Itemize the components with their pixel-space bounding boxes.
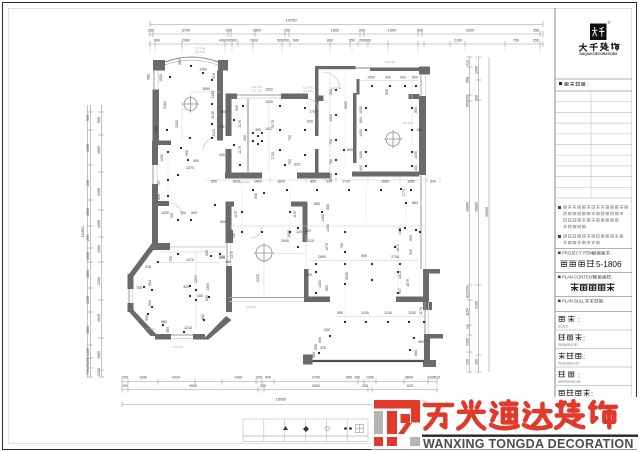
svg-text:1000: 1000 [367, 76, 375, 80]
svg-text::: : [587, 83, 588, 89]
svg-text:2690: 2690 [318, 255, 326, 259]
svg-text:737: 737 [157, 180, 161, 186]
svg-text:980: 980 [147, 74, 151, 80]
svg-text:855: 855 [211, 180, 217, 184]
svg-text:3600: 3600 [344, 101, 348, 109]
svg-text:1000: 1000 [97, 245, 101, 253]
svg-text:SCALE: SCALE [558, 325, 568, 329]
svg-text:1300: 1300 [465, 338, 469, 346]
svg-text:730: 730 [340, 243, 344, 249]
svg-text:1089: 1089 [287, 230, 291, 238]
svg-text:1430: 1430 [139, 376, 147, 380]
svg-text:1000: 1000 [86, 270, 90, 278]
svg-text:1800: 1800 [277, 180, 285, 184]
svg-text:400: 400 [359, 165, 363, 171]
svg-text:1680: 1680 [381, 180, 389, 184]
svg-text:200: 200 [122, 376, 128, 380]
svg-text:DESIGNED BY: DESIGNED BY [558, 362, 581, 366]
svg-text:2100: 2100 [454, 39, 462, 43]
svg-text:4600: 4600 [86, 326, 90, 334]
svg-text:905: 905 [361, 254, 367, 258]
svg-text:1175: 1175 [238, 120, 242, 128]
svg-text:4900: 4900 [189, 384, 197, 388]
svg-text:405: 405 [193, 159, 199, 163]
svg-text:1080: 1080 [155, 126, 159, 134]
svg-text:1500: 1500 [86, 252, 90, 260]
svg-text:600: 600 [318, 337, 322, 343]
svg-text:2240: 2240 [345, 272, 349, 280]
svg-text:C2 17a: C2 17a [173, 345, 183, 349]
svg-text:1482: 1482 [321, 214, 325, 222]
svg-text:1270: 1270 [186, 166, 194, 170]
svg-text:C2 17a: C2 17a [252, 89, 262, 93]
svg-text:560: 560 [178, 59, 182, 65]
svg-text:860: 860 [414, 350, 418, 356]
svg-text:600: 600 [293, 39, 299, 43]
svg-text:600: 600 [359, 117, 363, 123]
svg-text:C2 17a: C2 17a [145, 327, 155, 331]
svg-text:430: 430 [219, 153, 225, 157]
svg-text:1720: 1720 [342, 180, 350, 184]
svg-text:1170: 1170 [419, 307, 423, 315]
svg-text:1000: 1000 [474, 66, 478, 74]
svg-text:790: 790 [288, 135, 292, 141]
svg-text::: : [611, 251, 612, 256]
svg-text:1000: 1000 [359, 106, 363, 114]
svg-text:DAQIAN DECORATIONS: DAQIAN DECORATIONS [579, 52, 618, 56]
svg-text:200: 200 [260, 384, 266, 388]
svg-text:1100: 1100 [384, 311, 392, 315]
svg-text:3700: 3700 [182, 29, 190, 33]
svg-text:518: 518 [212, 73, 216, 79]
svg-text:1450: 1450 [199, 68, 207, 72]
svg-text:1600: 1600 [250, 39, 258, 43]
svg-text:650: 650 [346, 376, 352, 380]
svg-text:200: 200 [86, 235, 90, 241]
svg-text:PLAN BULL: PLAN BULL [562, 299, 585, 304]
svg-text:800: 800 [157, 194, 161, 200]
svg-text:13: 13 [465, 325, 469, 329]
svg-text:862: 862 [412, 201, 418, 205]
svg-text:PROJECT ITEM: PROJECT ITEM [562, 251, 593, 256]
svg-text:1270: 1270 [396, 244, 400, 252]
svg-text:600: 600 [191, 211, 197, 215]
svg-text:905: 905 [235, 105, 239, 111]
svg-text:964: 964 [148, 280, 152, 286]
svg-text:5-1806: 5-1806 [596, 260, 622, 269]
svg-text:®: ® [608, 20, 611, 25]
svg-text:1175: 1175 [238, 146, 242, 154]
svg-text:146: 146 [225, 260, 231, 264]
svg-text:1300: 1300 [206, 283, 210, 291]
svg-text:210: 210 [308, 239, 314, 243]
svg-text:625: 625 [294, 163, 300, 167]
svg-text:2300: 2300 [97, 277, 101, 285]
svg-text:1400: 1400 [326, 224, 330, 232]
svg-text:390: 390 [166, 327, 170, 333]
svg-text:750: 750 [136, 286, 142, 290]
svg-text:880: 880 [314, 202, 320, 206]
svg-text::: : [604, 299, 605, 304]
svg-text:1000: 1000 [359, 129, 363, 137]
svg-text:1679: 1679 [406, 279, 410, 287]
svg-text:200: 200 [86, 180, 90, 186]
svg-text:200: 200 [474, 359, 478, 365]
svg-text:2300: 2300 [175, 120, 179, 128]
svg-text:1400: 1400 [318, 280, 322, 288]
svg-text:2000: 2000 [97, 188, 101, 196]
svg-text:1182: 1182 [211, 91, 215, 99]
svg-text:600: 600 [265, 376, 271, 380]
svg-text:2029: 2029 [97, 314, 101, 322]
svg-text:4000: 4000 [86, 144, 90, 152]
svg-text:700: 700 [180, 211, 186, 215]
svg-text:800: 800 [414, 107, 418, 113]
svg-text:2400: 2400 [163, 101, 167, 109]
svg-text:1370: 1370 [186, 258, 194, 262]
svg-text:1770: 1770 [402, 189, 406, 197]
svg-text:750: 750 [513, 39, 519, 43]
svg-text:900: 900 [409, 249, 413, 255]
svg-text:700: 700 [169, 256, 173, 262]
svg-text:250: 250 [533, 29, 539, 33]
svg-text:650: 650 [254, 193, 258, 199]
svg-text:500: 500 [97, 117, 101, 123]
svg-text:500200: 500200 [277, 39, 289, 43]
svg-text:3250: 3250 [466, 29, 474, 33]
svg-text::: : [578, 371, 580, 380]
svg-text:15950: 15950 [276, 398, 287, 402]
svg-text:960: 960 [145, 315, 149, 321]
svg-text:120: 120 [306, 273, 312, 277]
svg-text:250: 250 [533, 39, 539, 43]
svg-text:855: 855 [310, 180, 316, 184]
svg-text:C2 17a: C2 17a [385, 60, 395, 64]
svg-text:2200: 2200 [97, 368, 101, 376]
svg-text:555: 555 [337, 311, 343, 315]
svg-text:C2 17a: C2 17a [195, 50, 205, 54]
svg-text:400: 400 [243, 135, 247, 141]
svg-text:700: 700 [86, 369, 90, 375]
svg-text:590: 590 [430, 180, 436, 184]
svg-text:PLAN CONTENT: PLAN CONTENT [562, 275, 595, 280]
svg-text:750: 750 [232, 233, 236, 239]
svg-text:DRAWING BY: DRAWING BY [558, 343, 579, 347]
svg-text:400: 400 [414, 165, 418, 171]
svg-text:C2 17a: C2 17a [240, 180, 250, 184]
svg-text:1525: 1525 [159, 74, 163, 82]
svg-text:555: 555 [385, 89, 389, 95]
svg-text:C2 17a: C2 17a [403, 121, 413, 125]
svg-text:4900: 4900 [97, 351, 101, 359]
svg-text:1430: 1430 [234, 376, 242, 380]
svg-text:500: 500 [220, 220, 226, 224]
svg-text:2700: 2700 [312, 376, 320, 380]
svg-text::: : [583, 352, 585, 361]
svg-text:220: 220 [219, 256, 225, 260]
svg-text:750: 750 [288, 159, 292, 165]
svg-text:500: 500 [326, 204, 330, 210]
svg-text:1140: 1140 [211, 111, 215, 119]
svg-text:14750: 14750 [285, 18, 297, 23]
svg-text:1252: 1252 [408, 311, 416, 315]
svg-text:1022: 1022 [265, 88, 273, 92]
svg-text:1137: 1137 [234, 210, 238, 218]
svg-text:1000: 1000 [414, 151, 418, 159]
svg-text:260: 260 [312, 352, 316, 358]
svg-text:2200: 2200 [86, 296, 90, 304]
svg-text:650: 650 [347, 148, 353, 152]
svg-text:C2 17a: C2 17a [331, 86, 341, 90]
svg-text:1218: 1218 [184, 326, 192, 330]
svg-text:555: 555 [314, 344, 318, 350]
svg-text:200500: 200500 [225, 39, 237, 43]
svg-text:500: 500 [86, 115, 90, 121]
svg-text:2800: 2800 [253, 29, 261, 33]
svg-text:200: 200 [256, 376, 262, 380]
svg-text:275: 275 [219, 125, 225, 129]
svg-text:4000: 4000 [97, 146, 101, 154]
svg-text:1434: 1434 [160, 154, 164, 162]
svg-text:1850: 1850 [331, 29, 339, 33]
svg-text:1100: 1100 [361, 311, 369, 315]
svg-text:4000: 4000 [312, 384, 320, 388]
svg-text:155: 155 [416, 128, 422, 132]
svg-text:16800: 16800 [465, 202, 469, 212]
svg-text:200: 200 [354, 376, 360, 380]
svg-text:1375: 1375 [230, 251, 234, 259]
svg-text:660: 660 [325, 285, 329, 291]
svg-text:1850: 1850 [202, 87, 210, 91]
svg-text::: : [591, 389, 593, 398]
svg-text:412: 412 [465, 60, 469, 66]
svg-text:765: 765 [170, 213, 174, 219]
svg-text:400: 400 [197, 294, 203, 298]
svg-text:450: 450 [220, 110, 226, 114]
svg-text:200: 200 [362, 384, 368, 388]
svg-text:2800: 2800 [86, 208, 90, 216]
svg-text:500: 500 [412, 76, 418, 80]
svg-text:1500: 1500 [97, 220, 101, 228]
svg-text:375: 375 [320, 346, 326, 350]
svg-text:1118: 1118 [212, 129, 216, 136]
svg-text:1154: 1154 [465, 308, 469, 316]
svg-text:530: 530 [326, 180, 332, 184]
svg-text:360: 360 [418, 340, 424, 344]
svg-text::: : [578, 315, 580, 324]
svg-text:823200: 823200 [465, 286, 469, 298]
svg-text:15950: 15950 [485, 207, 489, 217]
svg-text::: : [612, 275, 613, 280]
svg-text:200: 200 [205, 250, 209, 256]
svg-text:600: 600 [465, 101, 469, 107]
svg-text:1000: 1000 [329, 114, 333, 122]
svg-text:630: 630 [205, 295, 209, 301]
svg-text:580: 580 [161, 320, 167, 324]
svg-text:1027: 1027 [265, 127, 273, 131]
svg-text:1000: 1000 [359, 151, 363, 159]
svg-text:1270: 1270 [325, 243, 329, 251]
svg-text:200600: 200600 [359, 39, 371, 43]
svg-text:900: 900 [148, 300, 152, 306]
svg-text:775: 775 [309, 110, 315, 114]
svg-text:2000: 2000 [281, 239, 289, 243]
svg-text:1025: 1025 [265, 100, 273, 104]
svg-text:968: 968 [465, 77, 469, 83]
svg-text:2225: 2225 [256, 274, 260, 282]
svg-text:420: 420 [183, 285, 189, 289]
svg-text:C2 17a: C2 17a [303, 89, 313, 93]
svg-text:925: 925 [307, 120, 313, 124]
svg-text:1137: 1137 [293, 210, 297, 218]
svg-text:1725: 1725 [271, 152, 275, 160]
svg-text:400: 400 [255, 128, 261, 132]
svg-text:900: 900 [400, 76, 406, 80]
svg-text:2706: 2706 [391, 255, 399, 259]
svg-text:3600: 3600 [405, 376, 413, 380]
svg-text:620: 620 [407, 384, 413, 388]
svg-text:1200: 1200 [161, 211, 169, 215]
svg-text:200: 200 [122, 384, 128, 388]
svg-text:APPROVED BY: APPROVED BY [558, 380, 582, 384]
svg-text:16800: 16800 [474, 202, 478, 212]
svg-text:750: 750 [329, 159, 333, 165]
svg-text::: : [583, 334, 585, 343]
svg-text:608: 608 [185, 150, 189, 156]
svg-text:16350: 16350 [80, 226, 85, 238]
svg-text:900: 900 [409, 235, 413, 241]
svg-text:2029: 2029 [172, 376, 180, 380]
svg-text:2900: 2900 [182, 39, 190, 43]
svg-text:750: 750 [329, 139, 333, 145]
svg-text:C2 17a: C2 17a [246, 305, 256, 309]
svg-text:WANXING TONGDA DECORATION: WANXING TONGDA DECORATION [423, 437, 634, 451]
svg-text:1800: 1800 [254, 180, 262, 184]
svg-text:1600: 1600 [232, 180, 240, 184]
svg-text:1680: 1680 [407, 180, 415, 184]
svg-text:120: 120 [305, 229, 311, 233]
svg-text:120: 120 [296, 230, 302, 234]
svg-text:3100: 3100 [474, 301, 478, 309]
svg-text:1200: 1200 [366, 376, 374, 380]
svg-text:200: 200 [465, 95, 469, 101]
svg-text:300: 300 [324, 328, 330, 332]
svg-text:900: 900 [385, 76, 391, 80]
svg-text:450200: 450200 [86, 357, 90, 369]
svg-text:1400: 1400 [86, 348, 90, 356]
svg-text:200: 200 [465, 359, 469, 365]
svg-text:1900: 1900 [388, 29, 396, 33]
svg-text:218: 218 [145, 265, 151, 269]
